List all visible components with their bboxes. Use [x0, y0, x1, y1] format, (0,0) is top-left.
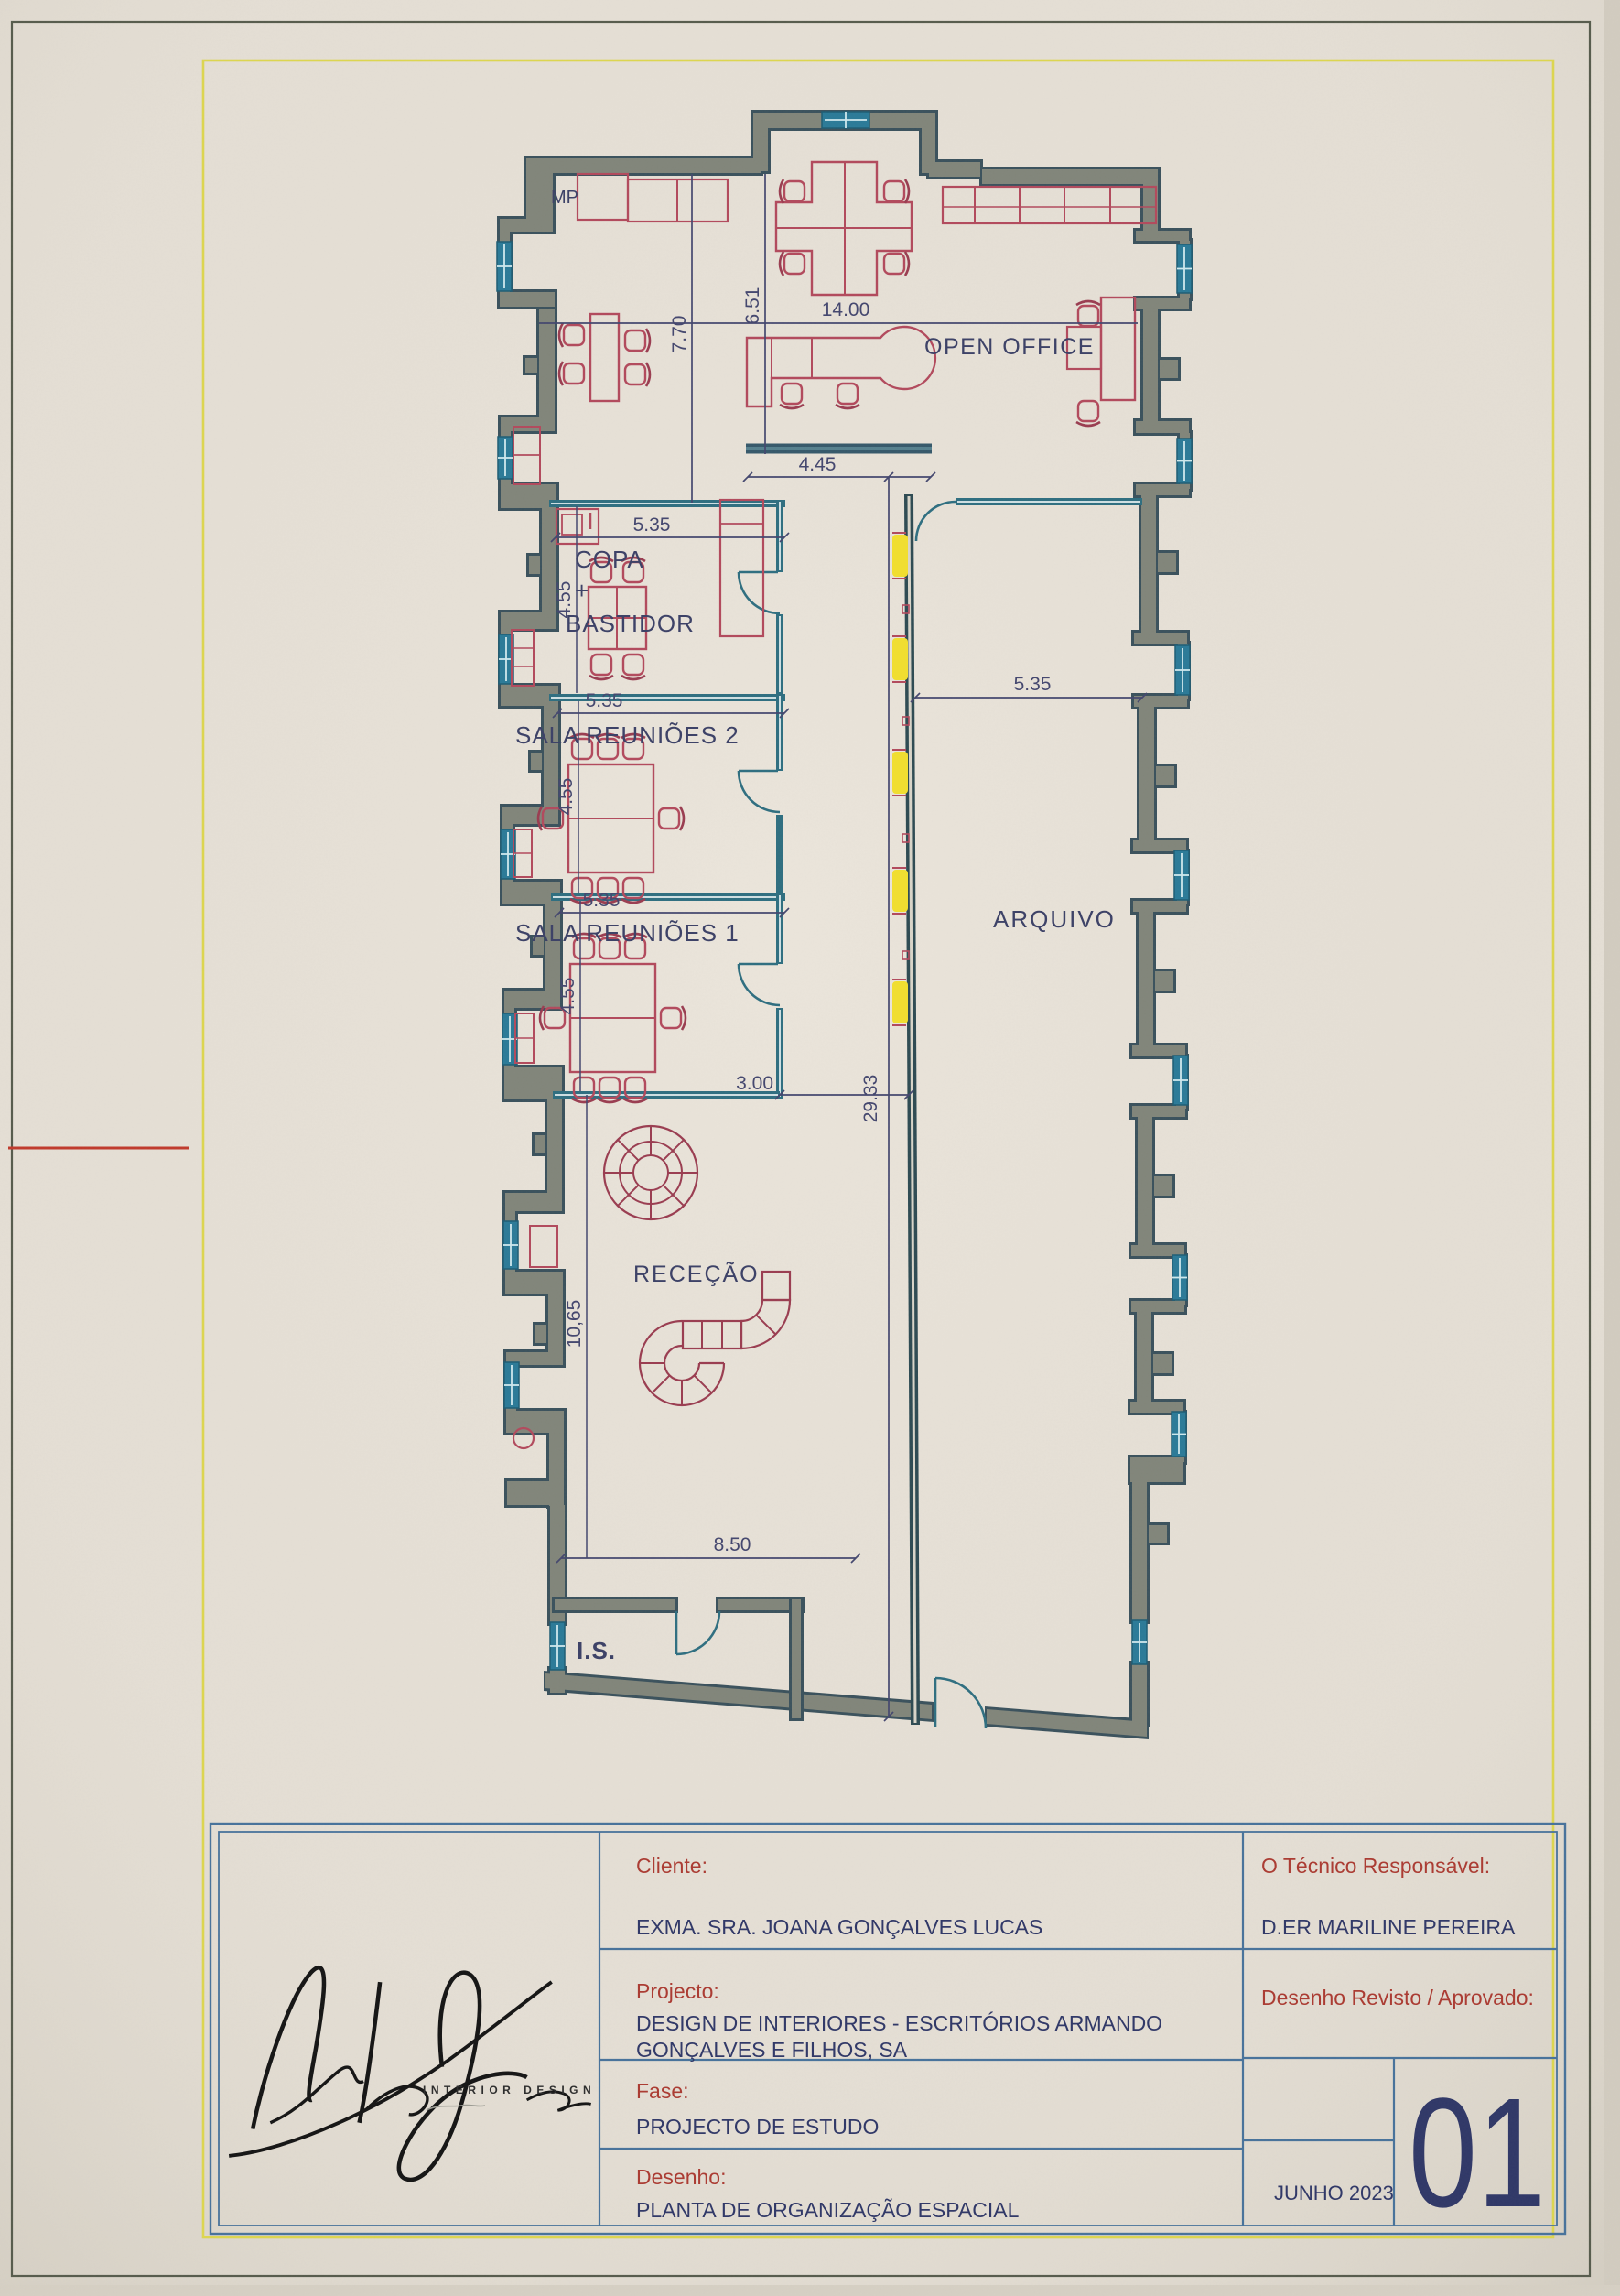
svg-text:8.50: 8.50	[714, 1534, 751, 1555]
svg-text:Fase:: Fase:	[636, 2079, 689, 2103]
svg-text:OPEN OFFICE: OPEN OFFICE	[924, 334, 1095, 360]
svg-text:3.00: 3.00	[736, 1073, 773, 1094]
svg-text:COPA: COPA	[575, 546, 644, 573]
svg-text:PLANTA DE ORGANIZAÇÃO ESPACIAL: PLANTA DE ORGANIZAÇÃO ESPACIAL	[636, 2198, 1020, 2222]
svg-text:BASTIDOR: BASTIDOR	[566, 610, 695, 637]
svg-text:JUNHO 2023: JUNHO 2023	[1274, 2182, 1394, 2204]
svg-text:Projecto:: Projecto:	[636, 1979, 719, 2003]
svg-text:+: +	[575, 577, 589, 604]
svg-text:14.00: 14.00	[822, 299, 870, 320]
svg-text:INTERIOR DESIGN: INTERIOR DESIGN	[423, 2084, 596, 2096]
svg-text:5.35: 5.35	[583, 890, 621, 911]
svg-text:GONÇALVES E FILHOS, SA: GONÇALVES E FILHOS, SA	[636, 2038, 908, 2062]
svg-text:5.35: 5.35	[633, 514, 671, 536]
svg-text:5.35: 5.35	[1014, 674, 1052, 695]
svg-text:29.33: 29.33	[860, 1075, 881, 1123]
svg-text:01: 01	[1409, 2066, 1546, 2240]
svg-text:SALA REUNIÕES 1: SALA REUNIÕES 1	[515, 919, 740, 947]
svg-text:MP: MP	[551, 188, 578, 208]
svg-text:4.55: 4.55	[556, 778, 577, 816]
svg-text:I.S.: I.S.	[577, 1637, 616, 1664]
svg-text:EXMA. SRA. JOANA GONÇALVES LUC: EXMA. SRA. JOANA GONÇALVES LUCAS	[636, 1915, 1042, 1939]
svg-text:D.ER MARILINE PEREIRA: D.ER MARILINE PEREIRA	[1261, 1915, 1516, 1939]
svg-text:10,65: 10,65	[564, 1300, 585, 1348]
svg-text:Cliente:: Cliente:	[636, 1854, 707, 1878]
svg-text:Desenho:: Desenho:	[636, 2165, 726, 2189]
svg-text:6.51: 6.51	[742, 287, 763, 325]
svg-text:4.45: 4.45	[799, 454, 837, 475]
svg-text:DESIGN DE INTERIORES - ESCRITÓ: DESIGN DE INTERIORES - ESCRITÓRIOS ARMAN…	[636, 2011, 1162, 2035]
svg-text:O Técnico Responsável:: O Técnico Responsável:	[1261, 1854, 1490, 1878]
svg-text:SALA REUNIÕES 2: SALA REUNIÕES 2	[515, 721, 740, 749]
svg-text:7.70: 7.70	[669, 316, 690, 353]
svg-text:PROJECTO DE ESTUDO: PROJECTO DE ESTUDO	[636, 2115, 879, 2139]
svg-text:Desenho Revisto / Aprovado:: Desenho Revisto / Aprovado:	[1261, 1986, 1534, 2009]
svg-text:5.35: 5.35	[586, 690, 623, 711]
svg-text:ARQUIVO: ARQUIVO	[993, 905, 1116, 933]
svg-text:4.55: 4.55	[557, 978, 578, 1015]
svg-text:RECEÇÃO: RECEÇÃO	[633, 1261, 760, 1287]
